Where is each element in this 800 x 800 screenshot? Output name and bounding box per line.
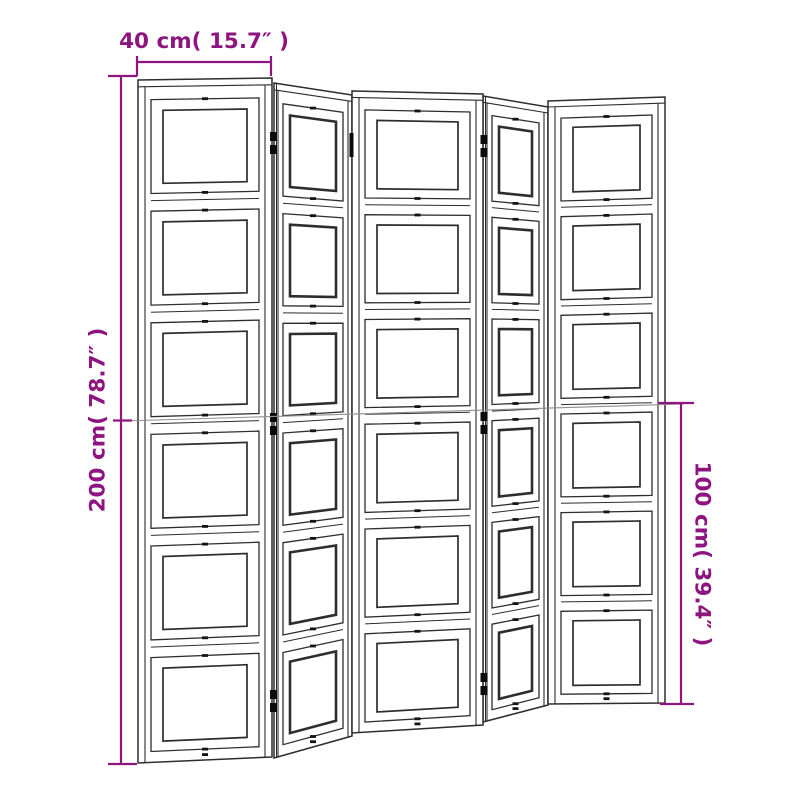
hinge-knuckle (270, 413, 277, 422)
peg-dot (604, 692, 610, 695)
peg-dot (202, 302, 208, 305)
peg-dot (513, 202, 519, 205)
hinge-knuckle (481, 686, 488, 695)
panel-frame (548, 97, 665, 704)
peg-dot (604, 609, 610, 612)
panel-line (365, 309, 470, 310)
peg-dot (415, 723, 421, 726)
hinge-bar (350, 133, 354, 157)
peg-dot (513, 418, 519, 421)
room-divider-dimension-diagram: 40 cm( 15.7″ ) 200 cm( 78.7″ ) 100 cm( 3… (0, 0, 800, 800)
peg-dot (415, 405, 421, 408)
dimension-label-right: 100 cm( 39.4″ ) (690, 462, 715, 647)
peg-dot (310, 735, 316, 738)
peg-dot (310, 645, 316, 648)
peg-dot (604, 297, 610, 300)
hinge-knuckle (481, 135, 488, 144)
dimension-label-left: 200 cm( 78.7″ ) (86, 328, 111, 513)
dimension-left: 200 cm( 78.7″ ) (86, 76, 138, 764)
peg-dot (415, 613, 421, 616)
peg-dot (513, 602, 519, 605)
peg-dot (415, 509, 421, 512)
peg-dot (604, 198, 610, 201)
peg-dot (310, 197, 316, 200)
hinge-knuckle (481, 148, 488, 157)
peg-dot (202, 414, 208, 417)
peg-dot (604, 697, 610, 700)
hinge-knuckle (270, 145, 277, 154)
peg-dot (202, 654, 208, 657)
peg-dot (415, 197, 421, 200)
dimension-right: 100 cm( 39.4″ ) (658, 403, 715, 704)
peg-dot (310, 429, 316, 432)
peg-dot (202, 209, 208, 212)
peg-dot (604, 396, 610, 399)
peg-dot (513, 502, 519, 505)
peg-dot (202, 97, 208, 100)
peg-dot (310, 628, 316, 631)
peg-dot (513, 302, 519, 305)
peg-dot (513, 618, 519, 621)
peg-dot (604, 115, 610, 118)
hinge-knuckle (481, 673, 488, 682)
folding-screen-drawing (138, 78, 665, 763)
peg-dot (604, 511, 610, 514)
peg-dot (513, 318, 519, 321)
peg-dot (202, 636, 208, 639)
hinge-knuckle (270, 426, 277, 435)
peg-dot (604, 313, 610, 316)
peg-dot (604, 594, 610, 597)
peg-dot (202, 191, 208, 194)
panel-2 (274, 83, 352, 758)
peg-dot (513, 518, 519, 521)
peg-dot (202, 748, 208, 751)
hinge-knuckle (270, 132, 277, 141)
peg-dot (202, 320, 208, 323)
peg-dot (415, 318, 421, 321)
peg-dot (310, 305, 316, 308)
peg-dot (513, 218, 519, 221)
peg-dot (415, 214, 421, 217)
hinge-knuckle (481, 412, 488, 421)
peg-dot (513, 707, 519, 710)
panel-1 (138, 78, 272, 763)
peg-dot (310, 214, 316, 217)
panel-5 (548, 97, 665, 704)
peg-dot (310, 107, 316, 110)
peg-dot (415, 422, 421, 425)
peg-dot (415, 301, 421, 304)
peg-dot (310, 537, 316, 540)
peg-dot (202, 543, 208, 546)
peg-dot (415, 717, 421, 720)
peg-dot (202, 753, 208, 756)
screenshot-canvas: 40 cm( 15.7″ ) 200 cm( 78.7″ ) 100 cm( 3… (0, 0, 800, 800)
peg-dot (513, 118, 519, 121)
hinge-knuckle (270, 703, 277, 712)
hinge-knuckle (270, 690, 277, 699)
peg-dot (604, 214, 610, 217)
peg-dot (513, 702, 519, 705)
peg-dot (513, 402, 519, 405)
peg-dot (310, 322, 316, 325)
peg-dot (202, 525, 208, 528)
peg-dot (604, 412, 610, 415)
peg-dot (415, 630, 421, 633)
peg-dot (310, 740, 316, 743)
peg-dot (604, 495, 610, 498)
peg-dot (415, 110, 421, 113)
peg-dot (415, 526, 421, 529)
peg-dot (202, 431, 208, 434)
dimension-top: 40 cm( 15.7″ ) (119, 29, 289, 76)
dimension-label-top: 40 cm( 15.7″ ) (119, 29, 289, 54)
hinge-knuckle (481, 425, 488, 434)
peg-dot (310, 520, 316, 523)
